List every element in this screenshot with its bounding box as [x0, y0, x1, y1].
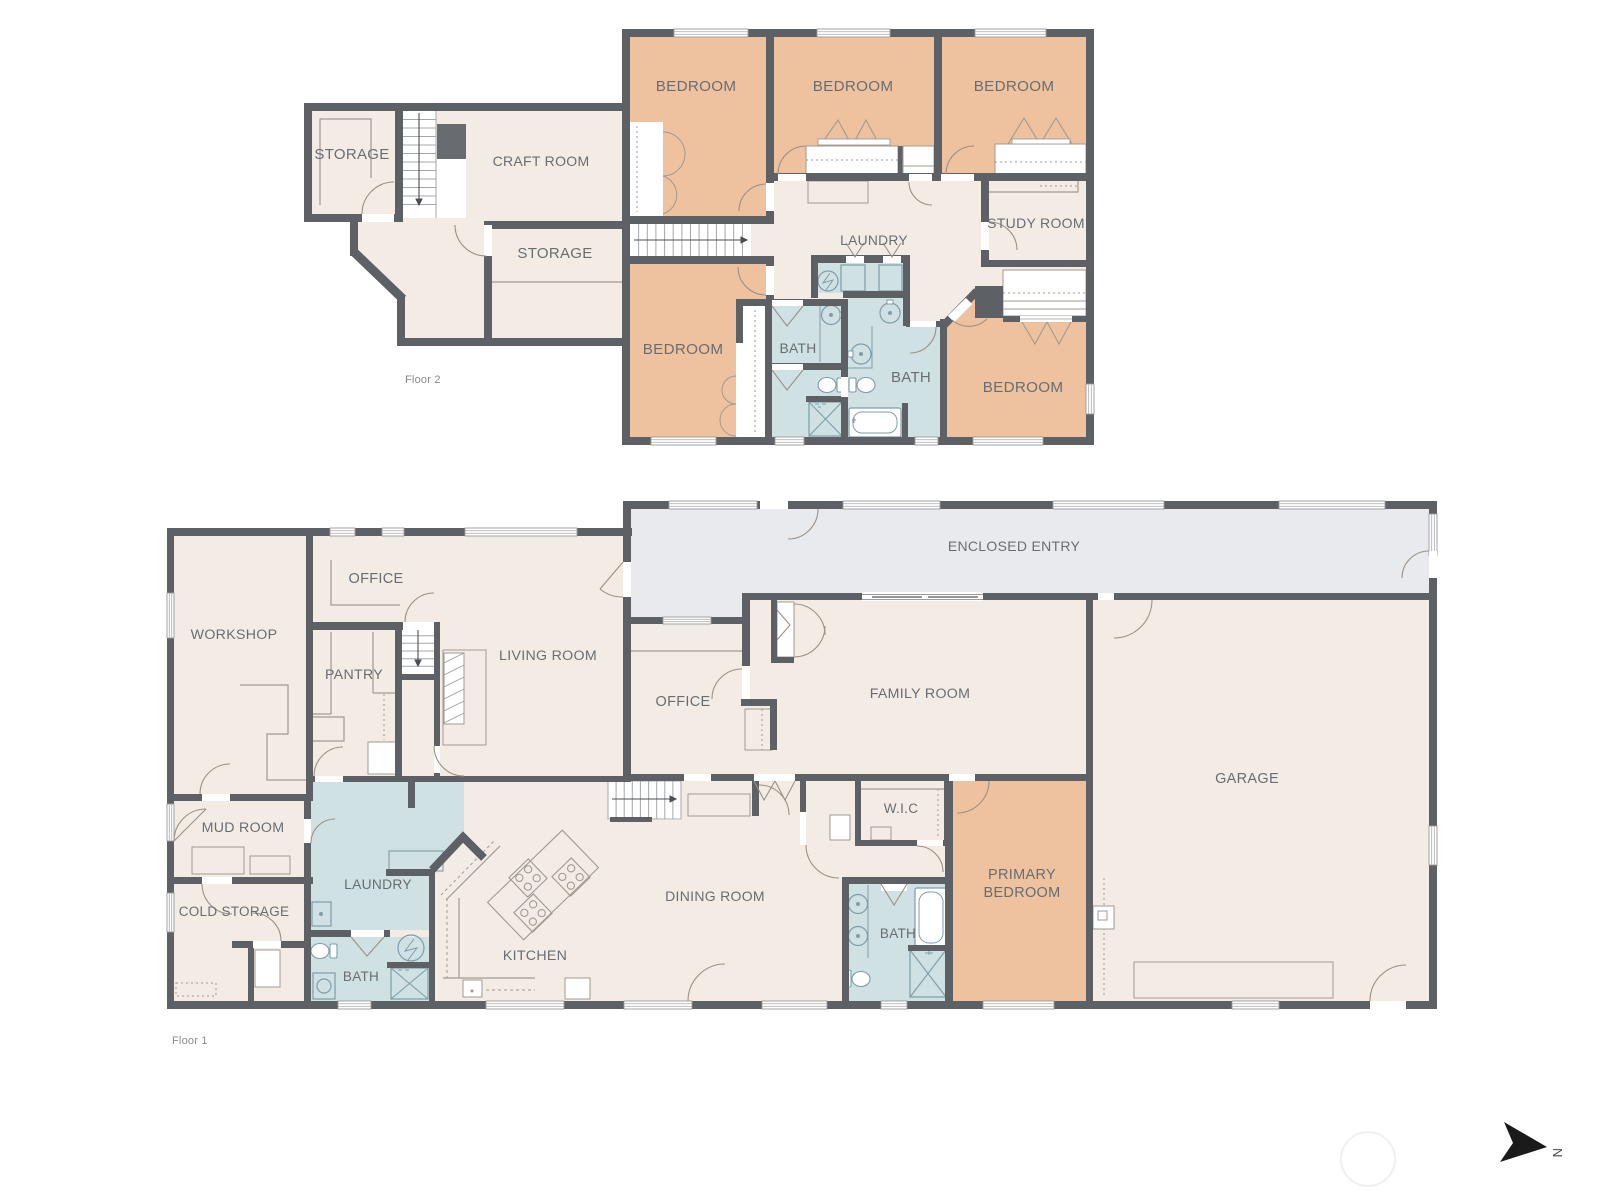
svg-text:KITCHEN: KITCHEN — [503, 948, 567, 964]
svg-text:FAMILY ROOM: FAMILY ROOM — [870, 686, 971, 702]
svg-text:LAUNDRY: LAUNDRY — [840, 233, 908, 248]
svg-text:BEDROOM: BEDROOM — [813, 78, 894, 95]
svg-text:BATH: BATH — [780, 341, 817, 356]
svg-text:STORAGE: STORAGE — [517, 245, 592, 262]
svg-text:BATH: BATH — [891, 369, 931, 386]
svg-text:BEDROOM: BEDROOM — [983, 885, 1060, 901]
svg-text:OFFICE: OFFICE — [349, 571, 404, 587]
svg-text:GARAGE: GARAGE — [1215, 771, 1279, 787]
svg-text:BEDROOM: BEDROOM — [974, 78, 1055, 95]
svg-text:BEDROOM: BEDROOM — [643, 341, 724, 358]
svg-text:W.I.C: W.I.C — [884, 801, 919, 816]
svg-text:PANTRY: PANTRY — [325, 667, 383, 683]
svg-text:Floor 2: Floor 2 — [405, 374, 441, 386]
svg-text:PRIMARY: PRIMARY — [988, 867, 1056, 883]
svg-text:MUD ROOM: MUD ROOM — [202, 820, 285, 836]
svg-text:DINING ROOM: DINING ROOM — [665, 888, 765, 904]
svg-text:BEDROOM: BEDROOM — [656, 78, 737, 95]
svg-text:LIVING ROOM: LIVING ROOM — [499, 648, 597, 664]
svg-text:COLD STORAGE: COLD STORAGE — [179, 904, 290, 919]
svg-text:LAUNDRY: LAUNDRY — [344, 877, 412, 892]
svg-text:WORKSHOP: WORKSHOP — [191, 627, 278, 643]
svg-text:CRAFT ROOM: CRAFT ROOM — [493, 153, 590, 169]
svg-text:BEDROOM: BEDROOM — [983, 379, 1064, 396]
svg-text:ENCLOSED ENTRY: ENCLOSED ENTRY — [948, 538, 1081, 554]
svg-text:BATH: BATH — [343, 969, 379, 984]
svg-text:BATH: BATH — [880, 926, 916, 941]
svg-text:STUDY ROOM: STUDY ROOM — [987, 215, 1085, 231]
svg-text:OFFICE: OFFICE — [656, 694, 711, 710]
svg-text:Floor 1: Floor 1 — [172, 1035, 208, 1047]
svg-text:N: N — [1550, 1148, 1565, 1157]
svg-text:STORAGE: STORAGE — [314, 146, 389, 163]
